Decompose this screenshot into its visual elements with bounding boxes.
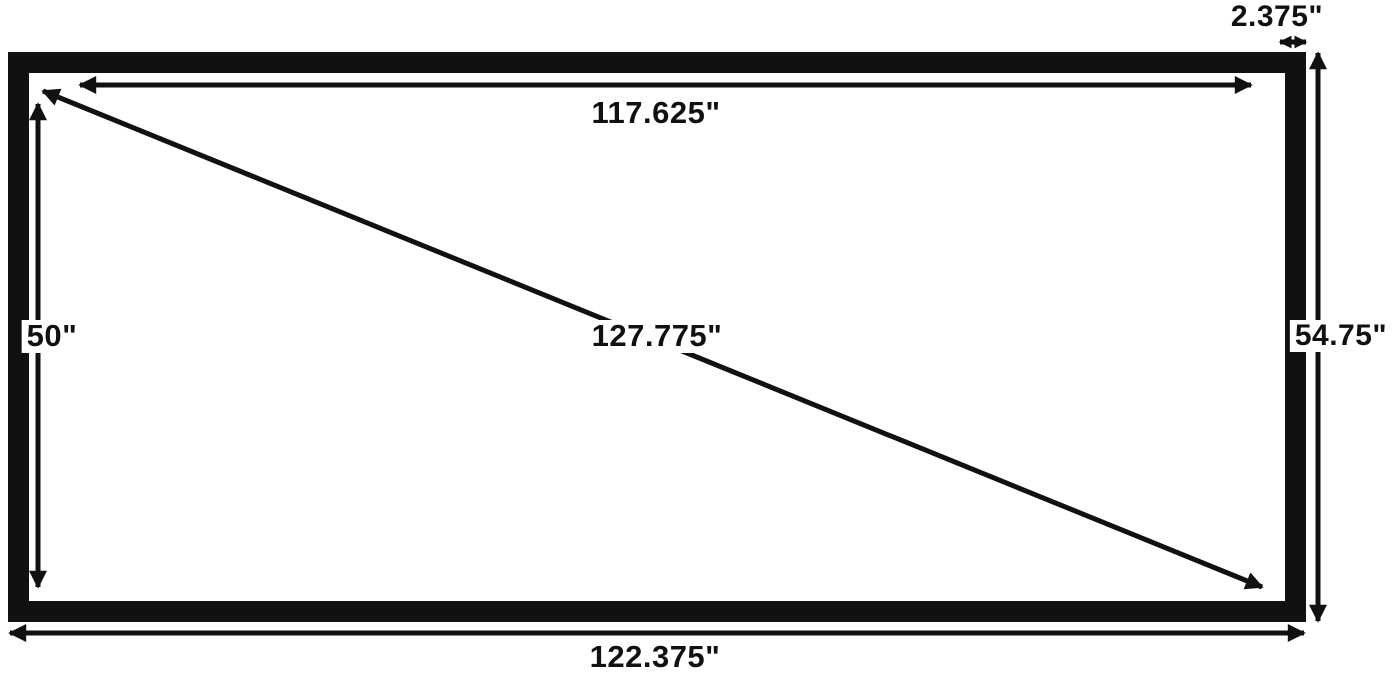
outer-height-label: 54.75": [1290, 320, 1392, 352]
diagram-canvas: 117.625" 127.775" 50" 54.75" 122.375" 2.…: [0, 0, 1397, 674]
diagonal-label: 127.775": [587, 320, 728, 353]
inner-height-label: 50": [22, 320, 83, 353]
border-width-label: 2.375": [1226, 1, 1328, 33]
inner-width-label: 117.625": [586, 97, 725, 130]
outer-width-label: 122.375": [585, 641, 726, 674]
